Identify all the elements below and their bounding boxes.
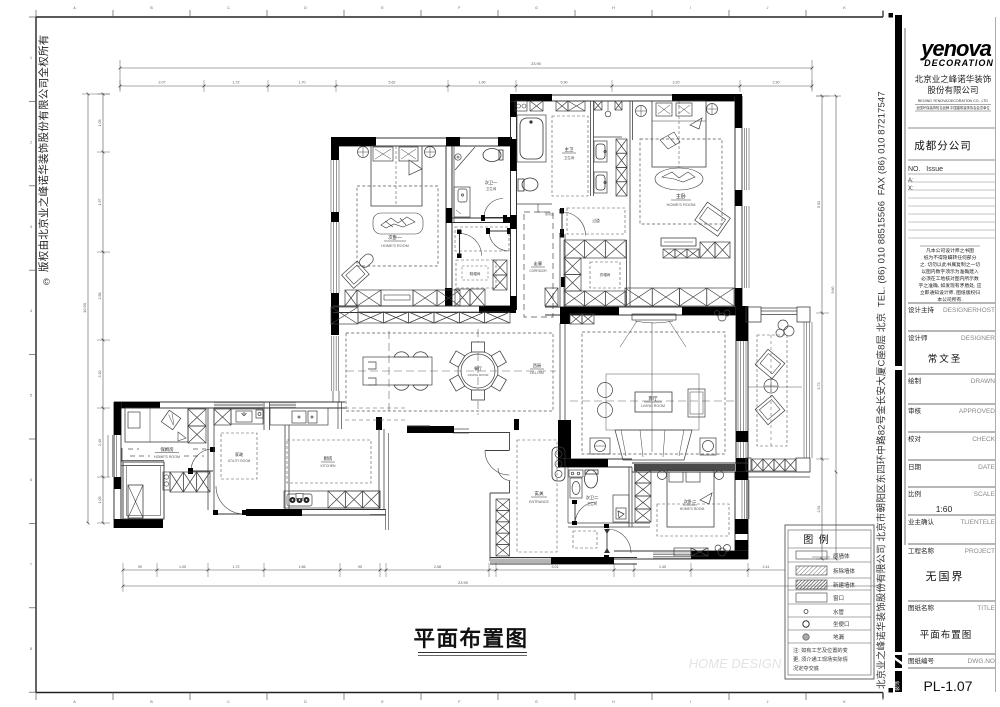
svg-text:地漏: 地漏 xyxy=(833,633,845,641)
svg-text:客厅: 客厅 xyxy=(648,395,658,402)
svg-text:F: F xyxy=(458,700,460,704)
svg-text:HOME'S ROOM: HOME'S ROOM xyxy=(381,244,409,248)
svg-text:北京业之峰诺华装饰股份有限公司 北京市朝阳区东四环中路82号: 北京业之峰诺华装饰股份有限公司 北京市朝阳区东四环中路82号金长安大厦C座8层 … xyxy=(876,91,888,689)
svg-text:F: F xyxy=(458,6,460,10)
svg-text:DESIGNERHOST: DESIGNERHOST xyxy=(943,307,995,314)
svg-text:2.58: 2.58 xyxy=(98,293,102,300)
svg-text:DECORATION: DECORATION xyxy=(924,58,994,68)
svg-text:必须在工地核对图内所示数: 必须在工地核对图内所示数 xyxy=(921,275,979,282)
svg-text:DINING ROOM: DINING ROOM xyxy=(468,373,489,377)
svg-text:HOME'S ROOM: HOME'S ROOM xyxy=(154,455,180,459)
svg-text:HOME DESIGN: HOME DESIGN xyxy=(689,656,782,671)
svg-text:2.30: 2.30 xyxy=(773,81,780,85)
svg-text:3.30: 3.30 xyxy=(98,371,102,378)
svg-text:平面布置图: 平面布置图 xyxy=(413,626,528,651)
svg-text:1.05: 1.05 xyxy=(179,565,186,569)
svg-text:无国界: 无国界 xyxy=(926,570,965,583)
svg-text:23.90: 23.90 xyxy=(458,580,469,585)
svg-text:校对: 校对 xyxy=(908,434,922,443)
svg-text:G: G xyxy=(535,6,538,10)
svg-text:APPROVED: APPROVED xyxy=(959,408,995,415)
svg-text:注: 如有工艺及位置的变: 注: 如有工艺及位置的变 xyxy=(793,646,848,654)
svg-text:2.07: 2.07 xyxy=(159,81,166,85)
svg-text:2.41: 2.41 xyxy=(763,565,770,569)
svg-text:6: 6 xyxy=(30,478,32,482)
svg-text:SCALE: SCALE xyxy=(974,491,996,498)
svg-text:股份有限公司: 股份有限公司 xyxy=(927,85,978,95)
svg-text:更, 须介通工现场实际情: 更, 须介通工现场实际情 xyxy=(793,655,848,663)
svg-text:5.90: 5.90 xyxy=(561,81,568,85)
svg-text:LIVING ROOM: LIVING ROOM xyxy=(641,404,665,408)
svg-text:2.54: 2.54 xyxy=(817,506,821,513)
svg-text:卫生间: 卫生间 xyxy=(486,186,497,191)
svg-text:3.20: 3.20 xyxy=(673,81,680,85)
svg-text:ENTRANCE: ENTRANCE xyxy=(529,500,549,504)
svg-text:成都分公司: 成都分公司 xyxy=(914,140,972,152)
svg-text:窗口: 窗口 xyxy=(833,594,844,602)
svg-text:图纸编号: 图纸编号 xyxy=(908,656,935,665)
svg-text:保姆房: 保姆房 xyxy=(160,446,174,453)
svg-text:DATE: DATE xyxy=(978,464,996,471)
svg-text:况定夺交底: 况定夺交底 xyxy=(793,664,819,672)
svg-text:绘制: 绘制 xyxy=(908,376,922,385)
svg-text:比例: 比例 xyxy=(908,489,921,498)
svg-text:95: 95 xyxy=(358,565,362,569)
svg-text:BEIJING YENOVA DECORATION CO.,: BEIJING YENOVA DECORATION CO., LTD xyxy=(918,99,988,103)
svg-text:玄关: 玄关 xyxy=(534,490,544,497)
svg-text:J: J xyxy=(767,700,769,704)
svg-text:业主确认: 业主确认 xyxy=(908,517,935,526)
svg-text:A:: A: xyxy=(908,178,914,184)
svg-text:1.72: 1.72 xyxy=(233,565,240,569)
svg-text:次卫二: 次卫二 xyxy=(586,494,599,501)
svg-text:坐便口: 坐便口 xyxy=(833,620,850,628)
svg-text:设计主持: 设计主持 xyxy=(908,305,935,314)
svg-text:厨房: 厨房 xyxy=(324,455,333,462)
svg-text:3: 3 xyxy=(30,225,32,229)
svg-text:23.90: 23.90 xyxy=(531,61,542,66)
svg-text:7: 7 xyxy=(30,562,32,566)
svg-text:1.90: 1.90 xyxy=(479,81,486,85)
svg-text:1.45: 1.45 xyxy=(659,565,666,569)
svg-text:水管: 水管 xyxy=(833,608,845,616)
svg-text:图纸名称: 图纸名称 xyxy=(908,603,935,612)
svg-text:9.60: 9.60 xyxy=(831,287,835,294)
svg-text:10.90: 10.90 xyxy=(82,302,87,313)
svg-text:TITLE: TITLE xyxy=(977,605,995,612)
svg-text:DWG.NO: DWG.NO xyxy=(968,658,995,665)
svg-text:以图内数字须示为准确建入: 以图内数字须示为准确建入 xyxy=(921,268,979,275)
svg-text:2.40: 2.40 xyxy=(98,439,102,446)
svg-text:日期: 日期 xyxy=(908,463,922,471)
svg-text:立即通知设计师, 图纸版权归: 立即通知设计师, 图纸版权归 xyxy=(920,289,980,296)
svg-text:餐厅: 餐厅 xyxy=(474,365,482,371)
svg-text:CORRIDOR: CORRIDOR xyxy=(529,269,547,273)
svg-text:UTILITY ROOM: UTILITY ROOM xyxy=(228,459,251,463)
svg-text:审核: 审核 xyxy=(908,406,922,415)
svg-text:常文圣: 常文圣 xyxy=(928,353,963,365)
svg-text:平面布置图: 平面布置图 xyxy=(920,629,973,641)
svg-text:设计师: 设计师 xyxy=(908,333,928,342)
svg-text:图 例: 图 例 xyxy=(803,533,829,546)
svg-text:DESIGNER: DESIGNER xyxy=(961,335,995,342)
svg-text:1.66: 1.66 xyxy=(299,565,306,569)
svg-text:HOME'S ROOM: HOME'S ROOM xyxy=(680,507,705,511)
svg-text:纸为不得隐瞒转任何部分: 纸为不得隐瞒转任何部分 xyxy=(924,254,977,261)
svg-text:8: 8 xyxy=(30,647,32,651)
svg-text:NO. Issue: NO. Issue xyxy=(908,166,943,173)
svg-text:90: 90 xyxy=(138,565,142,569)
svg-text:3.01: 3.01 xyxy=(552,565,559,569)
svg-text:1.05: 1.05 xyxy=(98,497,102,504)
svg-text:TLIENTELE: TLIENTELE xyxy=(960,519,995,526)
svg-text:卫生间: 卫生间 xyxy=(564,155,575,160)
svg-text:1:60: 1:60 xyxy=(936,504,953,514)
svg-text:拆除墙体: 拆除墙体 xyxy=(833,567,856,575)
svg-text:I: I xyxy=(690,6,691,10)
svg-text:1: 1 xyxy=(30,56,32,60)
svg-text:主卧: 主卧 xyxy=(676,193,686,200)
svg-text:©: © xyxy=(43,277,50,287)
svg-text:1.97: 1.97 xyxy=(98,199,102,206)
svg-text:DELI.RM: DELI.RM xyxy=(530,371,544,375)
svg-text:2: 2 xyxy=(30,140,32,144)
svg-text:过道: 过道 xyxy=(592,218,600,223)
svg-text:字之准确, 如发现有矛盾处, 应: 字之准确, 如发现有矛盾处, 应 xyxy=(919,282,982,289)
svg-text:1.05: 1.05 xyxy=(98,120,102,127)
svg-text:新建墙体: 新建墙体 xyxy=(833,581,856,589)
svg-text:5.53: 5.53 xyxy=(817,201,821,208)
svg-text:KITCHEN: KITCHEN xyxy=(321,464,336,468)
svg-text:J: J xyxy=(767,6,769,10)
svg-text:1.70: 1.70 xyxy=(299,81,306,85)
svg-text:窗帘盒: 窗帘盒 xyxy=(545,211,554,216)
svg-text:HOME'S ROOM: HOME'S ROOM xyxy=(667,202,696,207)
svg-text:本公司所有.: 本公司所有. xyxy=(937,296,962,303)
svg-text:之. 切勿以此书属复制之一切: 之. 切勿以此书属复制之一切 xyxy=(920,261,980,268)
svg-text:CHECK: CHECK xyxy=(972,436,995,443)
svg-text:5: 5 xyxy=(30,394,32,398)
svg-text:PROJECT: PROJECT xyxy=(965,548,995,555)
svg-text:DRAWN: DRAWN xyxy=(971,378,996,385)
svg-text:次卧一: 次卧一 xyxy=(388,234,402,241)
svg-text:走廊: 走廊 xyxy=(534,260,542,267)
svg-text:2.58: 2.58 xyxy=(434,565,441,569)
svg-text:次卫一: 次卫一 xyxy=(485,179,498,186)
svg-text:PL-1.07: PL-1.07 xyxy=(923,678,972,694)
svg-text:次卧二: 次卧二 xyxy=(684,498,697,505)
svg-text:G: G xyxy=(535,700,538,704)
svg-text:装饰: 装饰 xyxy=(894,681,901,691)
svg-text:1.72: 1.72 xyxy=(233,81,240,85)
svg-text:鞋帽间: 鞋帽间 xyxy=(470,271,481,276)
svg-text:4: 4 xyxy=(30,309,32,313)
svg-text:3.73: 3.73 xyxy=(817,383,821,390)
svg-text:全国环保装饰知名品牌 中国建筑装饰协会会员单位: 全国环保装饰知名品牌 中国建筑装饰协会会员单位 xyxy=(916,105,990,110)
svg-text:X:: X: xyxy=(908,186,914,192)
svg-text:衣帽间: 衣帽间 xyxy=(600,272,611,277)
svg-text:凡本公司设计师之书图: 凡本公司设计师之书图 xyxy=(926,247,974,254)
svg-text:家政: 家政 xyxy=(235,451,243,457)
svg-text:工程名称: 工程名称 xyxy=(908,546,935,555)
svg-text:版权由北京业之峰诺华装饰股份有限公司全权所有: 版权由北京业之峰诺华装饰股份有限公司全权所有 xyxy=(37,34,50,272)
svg-text:主卫: 主卫 xyxy=(565,146,574,152)
svg-text:5.62: 5.62 xyxy=(389,81,396,85)
svg-text:I: I xyxy=(690,700,691,704)
svg-text:北京业之峰诺华装饰: 北京业之峰诺华装饰 xyxy=(915,74,992,84)
